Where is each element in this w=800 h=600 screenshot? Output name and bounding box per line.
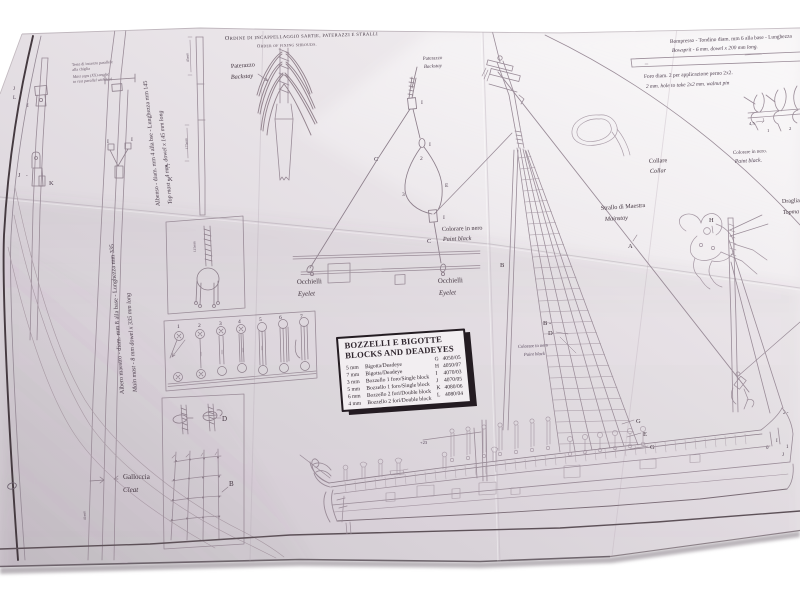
svg-text:175mm: 175mm xyxy=(184,138,189,149)
svg-text:+23: +23 xyxy=(420,440,428,445)
svg-text:I: I xyxy=(429,142,431,148)
svg-text:5: 5 xyxy=(259,317,262,323)
svg-text:C: C xyxy=(374,156,378,163)
svg-text:D: D xyxy=(548,330,553,337)
svg-text:4050/07: 4050/07 xyxy=(443,362,462,369)
svg-text:A: A xyxy=(628,243,633,250)
svg-text:3: 3 xyxy=(219,321,222,327)
svg-text:I: I xyxy=(421,100,423,106)
svg-text:3: 3 xyxy=(402,192,405,198)
svg-text:6 mm: 6 mm xyxy=(348,393,362,400)
svg-text:Topma: Topma xyxy=(783,209,799,216)
svg-text:41mm: 41mm xyxy=(82,511,87,521)
svg-text:Paint black: Paint black xyxy=(442,235,472,243)
svg-text:Occhielli: Occhielli xyxy=(438,277,463,285)
svg-text:I: I xyxy=(443,215,445,221)
svg-text:I: I xyxy=(107,139,109,145)
svg-text:4: 4 xyxy=(238,319,241,325)
svg-text:K: K xyxy=(436,385,440,391)
svg-text:45mm: 45mm xyxy=(185,53,190,63)
svg-text:J: J xyxy=(13,87,15,92)
svg-text:5 mm: 5 mm xyxy=(347,386,361,393)
svg-text:Eyelet: Eyelet xyxy=(297,290,316,298)
svg-text:K: K xyxy=(49,180,54,187)
svg-text:2: 2 xyxy=(420,156,423,162)
svg-text:4080/06: 4080/06 xyxy=(444,384,463,391)
svg-text:4050/05: 4050/05 xyxy=(442,355,461,362)
svg-text:I: I xyxy=(131,137,133,143)
svg-text:4070/03: 4070/03 xyxy=(443,369,462,376)
svg-text:Collar: Collar xyxy=(650,167,667,175)
svg-text:1: 1 xyxy=(177,324,180,330)
svg-text:L: L xyxy=(13,96,16,101)
svg-text:H: H xyxy=(435,364,439,370)
svg-text:Colorare in nero: Colorare in nero xyxy=(442,225,483,233)
svg-text:H: H xyxy=(709,217,714,224)
svg-text:B: B xyxy=(500,262,505,269)
svg-text:G: G xyxy=(434,356,438,362)
svg-text:7 mm: 7 mm xyxy=(346,372,360,379)
svg-text:E: E xyxy=(643,431,647,438)
svg-text:3 mm: 3 mm xyxy=(347,379,361,386)
svg-text:4080/04: 4080/04 xyxy=(445,391,464,398)
svg-text:Draglia: Draglia xyxy=(782,198,800,205)
svg-text:115mm: 115mm xyxy=(192,241,197,252)
svg-text:Occhielli: Occhielli xyxy=(297,278,322,286)
svg-text:Paterazzo: Paterazzo xyxy=(423,56,443,62)
svg-text:B -: B - xyxy=(543,320,551,327)
svg-text:B: B xyxy=(229,480,234,488)
svg-text:G: G xyxy=(650,444,655,451)
svg-text:4 mm: 4 mm xyxy=(348,401,362,408)
svg-text:Eyelet: Eyelet xyxy=(438,289,457,297)
svg-text:J: J xyxy=(782,453,784,458)
svg-text:4070/05: 4070/05 xyxy=(444,376,463,383)
svg-text:G: G xyxy=(636,418,641,425)
svg-text:2: 2 xyxy=(198,323,201,329)
svg-text:Collare: Collare xyxy=(649,157,668,165)
svg-text:C: C xyxy=(427,238,431,245)
svg-text:D: D xyxy=(222,415,227,423)
svg-text:Backstay: Backstay xyxy=(424,64,443,70)
svg-text:5 mm: 5 mm xyxy=(346,365,360,372)
